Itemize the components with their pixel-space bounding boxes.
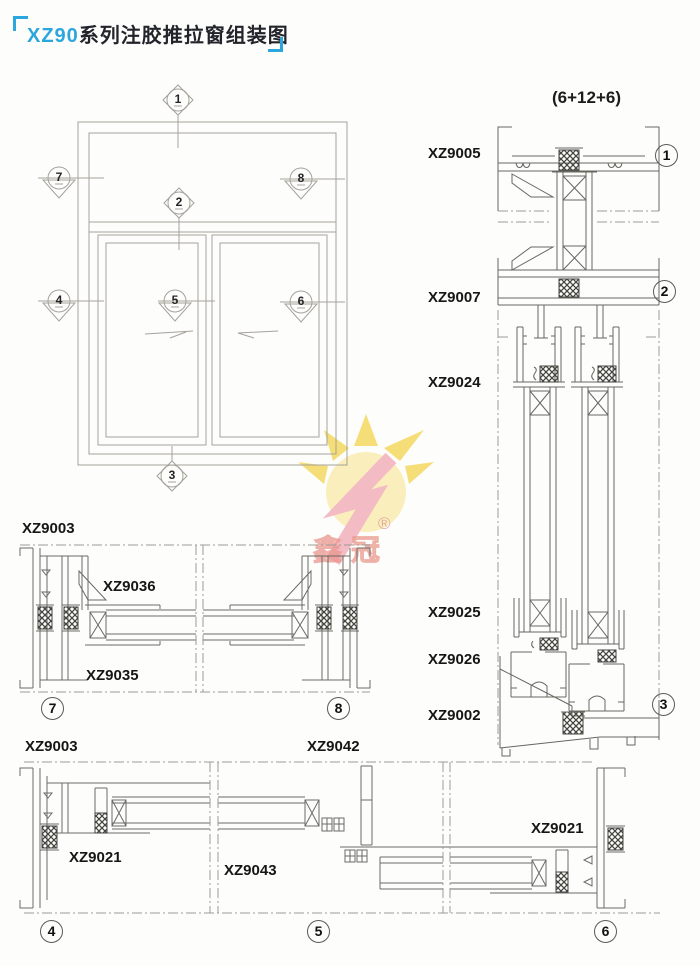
gasket-block — [559, 279, 579, 297]
flap-wedge — [284, 571, 311, 600]
jamb-section-drawing — [20, 548, 370, 688]
spacer-box — [532, 860, 546, 886]
profile-label-xz9036: XZ9036 — [103, 578, 156, 595]
title-bracket-close-icon — [268, 37, 283, 52]
flap-wedge — [512, 247, 553, 270]
detail-number-3: 3 — [652, 693, 675, 716]
profile-label-xz9007: XZ9007 — [428, 289, 481, 306]
title-bracket-open-icon — [13, 16, 28, 31]
spacer-box — [292, 612, 308, 638]
profile-label-xz9043: XZ9043 — [224, 862, 277, 879]
flap-wedge — [512, 174, 553, 197]
marker-2: 2 — [171, 195, 187, 209]
spacer-box — [563, 176, 586, 200]
gasket-block — [563, 712, 583, 734]
section-leader-lines — [38, 115, 345, 461]
marker-3: 3 — [164, 468, 180, 482]
profile-label-xz9021-left: XZ9021 — [69, 849, 122, 866]
clip-icon — [584, 856, 592, 886]
gasket-block — [343, 607, 357, 629]
profile-label-xz9024: XZ9024 — [428, 374, 481, 391]
gasket-block — [608, 828, 623, 850]
clip-icon — [532, 641, 534, 648]
gasket-block — [598, 366, 616, 382]
marker-1: 1 — [170, 92, 186, 106]
detail-number-5: 5 — [307, 920, 330, 943]
spacer-box — [563, 246, 586, 270]
vertical-section-drawing — [498, 127, 659, 756]
spacer-box — [588, 391, 608, 415]
clip-icon — [357, 850, 367, 862]
marker-8: 8 — [293, 171, 309, 185]
detail-number-6: 6 — [594, 920, 617, 943]
detail-number-8: 8 — [327, 697, 350, 720]
profile-label-xz9025: XZ9025 — [428, 604, 481, 621]
clip-icon — [534, 367, 537, 380]
spacer-box — [530, 600, 550, 626]
marker-6: 6 — [293, 294, 309, 308]
spacer-box — [305, 800, 319, 826]
assembly-drawing-page: 鑫冠 ® — [0, 0, 700, 965]
gasket-block — [95, 813, 107, 833]
clip-icon — [334, 818, 344, 831]
gasket-block — [540, 366, 558, 382]
spacer-box — [112, 800, 126, 826]
gasket-block — [38, 607, 52, 629]
marker-4: 4 — [51, 293, 67, 307]
spacer-box — [90, 612, 106, 638]
clip-icon — [322, 818, 332, 831]
profile-label-xz9002: XZ9002 — [428, 707, 481, 724]
clip-icon — [345, 850, 355, 862]
profile-label-xz9005: XZ9005 — [428, 145, 481, 162]
gasket-block — [317, 607, 331, 629]
glass-spec-label: (6+12+6) — [552, 88, 621, 108]
page-title: XZ90系列注胶推拉窗组装图 — [27, 19, 289, 48]
title-text: 系列注胶推拉窗组装图 — [79, 25, 289, 47]
gasket-block — [42, 826, 57, 848]
detail-number-1: 1 — [655, 144, 678, 167]
gasket-block — [556, 872, 568, 892]
detail-number-7: 7 — [41, 697, 64, 720]
gasket-block — [559, 150, 579, 170]
clip-icon — [592, 367, 595, 380]
elevation-drawing — [38, 85, 347, 491]
gasket-block — [64, 607, 78, 629]
profile-label-xz9035: XZ9035 — [86, 667, 139, 684]
profile-label-xz9003-jamb: XZ9003 — [22, 520, 75, 537]
detail-number-4: 4 — [40, 920, 63, 943]
detail-number-2: 2 — [653, 280, 676, 303]
profile-label-xz9003-sill: XZ9003 — [25, 738, 78, 755]
clip-icon — [340, 570, 348, 597]
spacer-box — [588, 612, 608, 638]
assembly-line-art — [0, 0, 700, 965]
clip-icon — [42, 570, 50, 597]
section-marker-icons — [43, 85, 317, 491]
flap-wedge — [79, 571, 106, 600]
marker-5: 5 — [167, 293, 183, 307]
profile-label-xz9042: XZ9042 — [307, 738, 360, 755]
spacer-box — [530, 391, 550, 415]
gasket-block — [598, 650, 616, 662]
gasket-block — [540, 638, 558, 650]
profile-label-xz9021-right: XZ9021 — [531, 820, 584, 837]
title-series: XZ90 — [27, 25, 79, 47]
marker-7: 7 — [51, 170, 67, 184]
clip-icon — [44, 793, 52, 818]
profile-label-xz9026: XZ9026 — [428, 651, 481, 668]
sill-section-drawing — [20, 766, 625, 908]
